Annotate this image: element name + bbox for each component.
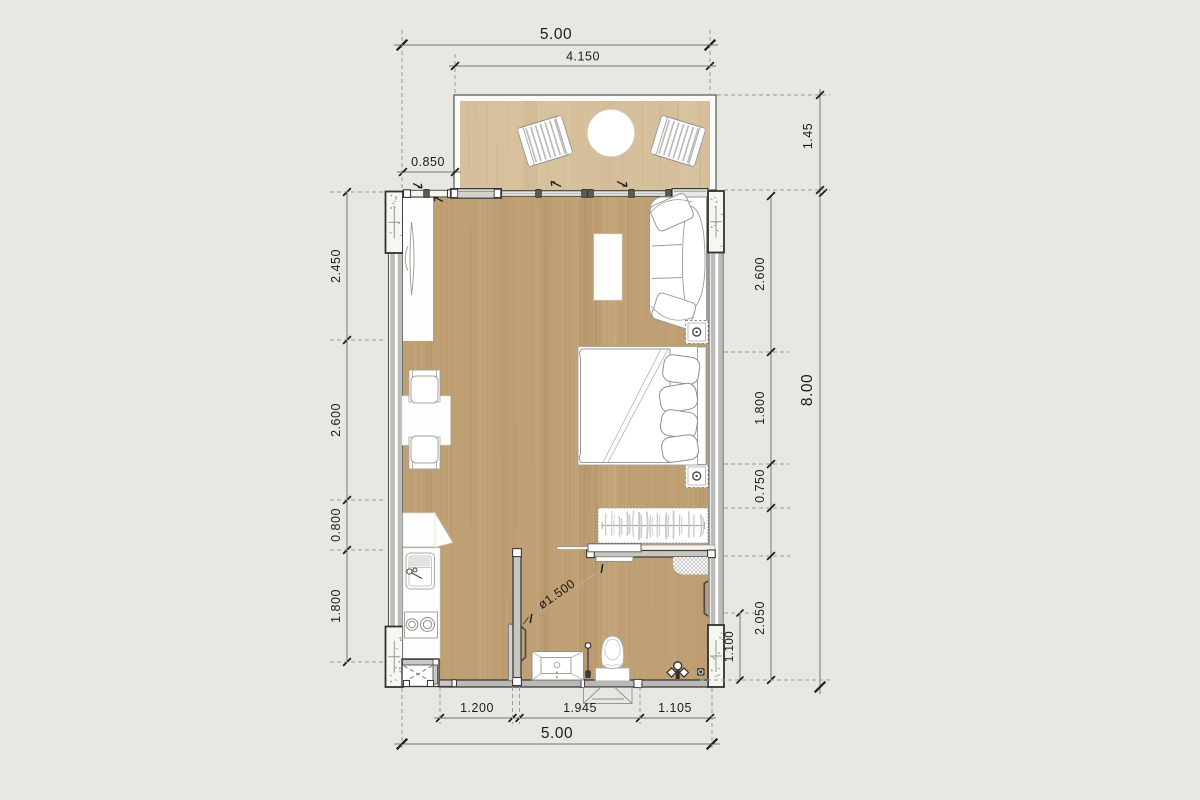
svg-text:4.150: 4.150 bbox=[566, 50, 600, 64]
svg-text:5.00: 5.00 bbox=[541, 725, 573, 742]
svg-text:1.800: 1.800 bbox=[753, 391, 767, 425]
svg-text:2.050: 2.050 bbox=[753, 601, 767, 635]
svg-text:1.100: 1.100 bbox=[724, 631, 736, 662]
svg-text:5.00: 5.00 bbox=[540, 26, 572, 43]
svg-text:8.00: 8.00 bbox=[799, 374, 816, 406]
svg-text:2.450: 2.450 bbox=[329, 249, 343, 283]
svg-text:1.45: 1.45 bbox=[801, 123, 815, 149]
svg-text:0.850: 0.850 bbox=[411, 155, 445, 169]
svg-text:2.600: 2.600 bbox=[329, 403, 343, 437]
svg-text:1.945: 1.945 bbox=[563, 701, 597, 715]
svg-text:1.200: 1.200 bbox=[460, 701, 494, 715]
svg-text:0.800: 0.800 bbox=[329, 508, 343, 542]
svg-text:1.105: 1.105 bbox=[658, 701, 692, 715]
svg-text:2.600: 2.600 bbox=[753, 257, 767, 291]
svg-text:0.750: 0.750 bbox=[753, 469, 767, 503]
svg-text:1.800: 1.800 bbox=[329, 589, 343, 623]
